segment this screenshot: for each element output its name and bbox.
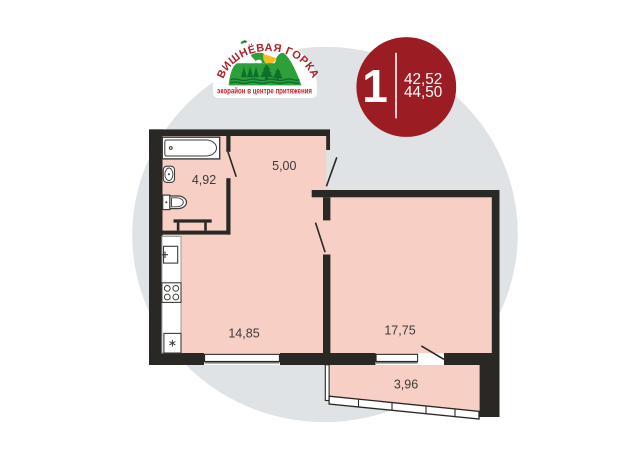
svg-text:1: 1: [362, 60, 388, 112]
svg-text:3,96: 3,96: [394, 378, 418, 392]
svg-text:14,85: 14,85: [228, 327, 259, 341]
svg-text:44,50: 44,50: [404, 84, 442, 101]
svg-text:4,92: 4,92: [192, 173, 216, 187]
svg-text:экорайон в центре притяжения: экорайон в центре притяжения: [217, 87, 312, 96]
svg-text:5,00: 5,00: [272, 159, 296, 173]
svg-text:17,75: 17,75: [384, 324, 415, 338]
